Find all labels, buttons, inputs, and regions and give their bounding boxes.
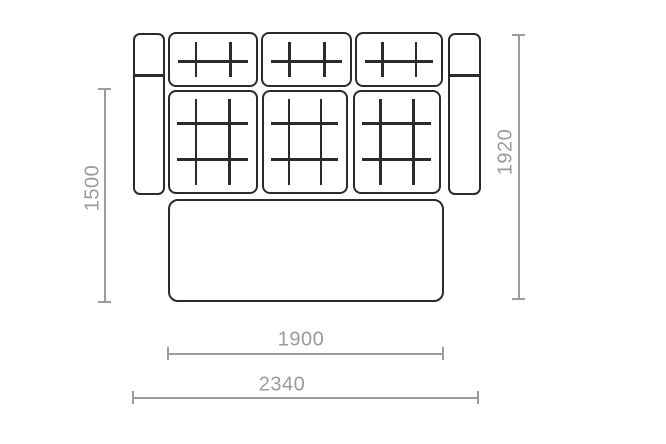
dimension-tick (98, 88, 111, 90)
sofa-dimension-diagram: 1500 1920 1900 2340 (0, 0, 666, 444)
back-cushion (168, 32, 258, 87)
dimension-line (132, 397, 478, 399)
dimension-tick (442, 347, 444, 360)
stitch-line (381, 42, 384, 77)
back-cushion (261, 32, 352, 87)
stitch-line (288, 99, 291, 185)
stitch-line (362, 122, 431, 125)
dimension-label: 1920 (495, 129, 518, 176)
stitch-line (195, 42, 198, 77)
seat-cushion (262, 90, 348, 194)
stitch-line (177, 122, 248, 125)
left-armrest-seam (134, 74, 164, 77)
stitch-line (323, 42, 326, 77)
dimension-tick (167, 347, 169, 360)
dimension-label: 1900 (278, 329, 325, 352)
stitch-line (195, 99, 198, 185)
dimension-tick (98, 301, 111, 303)
dimension-tick (477, 391, 479, 404)
seat-cushion (353, 90, 441, 194)
seat-cushion (168, 90, 258, 194)
stitch-line (365, 60, 433, 63)
stitch-line (271, 122, 338, 125)
stitch-line (379, 99, 382, 185)
dimension-tick (512, 34, 525, 36)
dimension-tick (132, 391, 134, 404)
stitch-line (362, 158, 431, 161)
right-armrest (448, 33, 481, 195)
right-armrest-seam (449, 74, 480, 77)
stitch-line (288, 42, 291, 77)
left-armrest (133, 33, 165, 195)
stitch-line (271, 158, 338, 161)
stitch-line (178, 60, 248, 63)
dimension-tick (512, 298, 525, 300)
dimension-label: 1500 (82, 165, 105, 212)
seat-base (168, 199, 444, 302)
stitch-line (271, 60, 342, 63)
stitch-line (228, 99, 231, 185)
stitch-line (415, 42, 418, 77)
dimension-label: 2340 (259, 374, 306, 397)
stitch-line (320, 99, 323, 185)
back-cushion (355, 32, 443, 87)
stitch-line (229, 42, 232, 77)
dimension-line (167, 353, 443, 355)
stitch-line (177, 158, 248, 161)
dimension-line (518, 34, 520, 299)
stitch-line (412, 99, 415, 185)
